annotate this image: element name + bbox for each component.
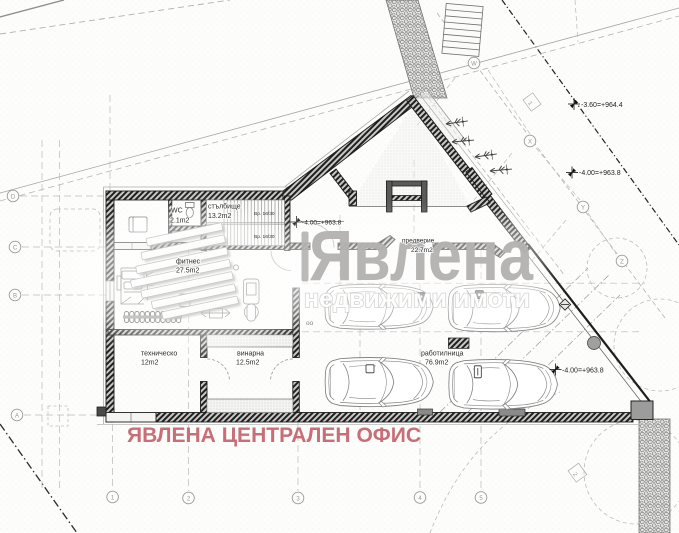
- svg-text:A: A: [15, 414, 19, 420]
- svg-text:C: C: [13, 246, 18, 252]
- svg-text:работилница: работилница: [421, 350, 464, 358]
- svg-text:Y: Y: [581, 206, 585, 212]
- svg-text:12m2: 12m2: [141, 360, 159, 367]
- svg-text:X: X: [528, 140, 532, 146]
- svg-text:ЯВЛЕНА ЦЕНТРАЛЕН ОФИС: ЯВЛЕНА ЦЕНТРАЛЕН ОФИС: [127, 424, 421, 447]
- svg-text:B: B: [13, 294, 17, 300]
- svg-text:27.5m2: 27.5m2: [176, 268, 199, 275]
- svg-text:WC: WC: [171, 208, 183, 215]
- svg-text:2.1m2: 2.1m2: [170, 218, 190, 225]
- svg-text:76.9m2: 76.9m2: [425, 360, 448, 367]
- svg-text:W: W: [471, 62, 477, 68]
- svg-text:техническо: техническо: [141, 351, 177, 358]
- svg-text:13.2m2: 13.2m2: [208, 213, 231, 220]
- svg-text:D: D: [11, 195, 16, 201]
- svg-text:Z: Z: [620, 260, 624, 266]
- svg-text:предверие: предверие: [402, 238, 435, 245]
- svg-text:фитнес: фитнес: [176, 259, 201, 266]
- svg-text:-3.60=+964.4: -3.60=+964.4: [581, 102, 623, 109]
- svg-text:стълбище: стълбище: [208, 203, 241, 211]
- svg-text:-4.00=+963.8: -4.00=+963.8: [302, 220, 342, 227]
- svg-text:-4.00=+963.8: -4.00=+963.8: [579, 170, 621, 177]
- svg-text:12.5m2: 12.5m2: [236, 360, 259, 367]
- svg-text:oo: oo: [306, 320, 314, 327]
- svg-text:недвижими имоти: недвижими имоти: [304, 285, 530, 313]
- svg-text:Вр. 16/30: Вр. 16/30: [254, 234, 275, 240]
- svg-text:Вр. 16/30: Вр. 16/30: [254, 211, 275, 217]
- svg-text:-4.00=+963.8: -4.00=+963.8: [562, 368, 604, 375]
- svg-text:винарна: винарна: [237, 351, 264, 358]
- svg-text:22.7m2: 22.7m2: [411, 247, 433, 254]
